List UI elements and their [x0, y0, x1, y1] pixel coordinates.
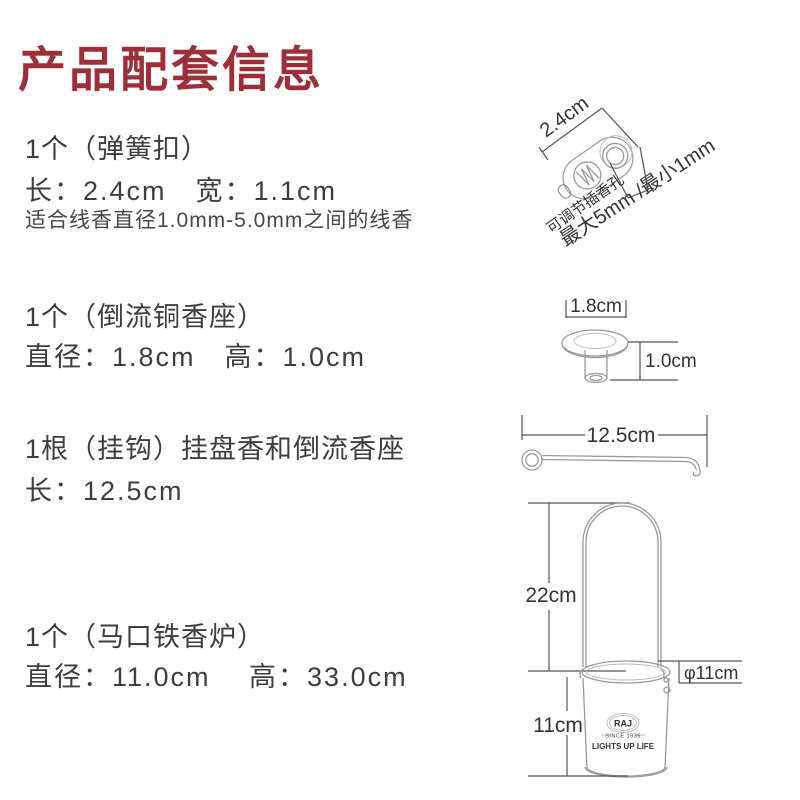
copper-seat-diagram: 1.8cm 1.0cm: [550, 290, 720, 400]
burner-logo: RAJ SINCE 1935 LIGHTS UP LIFE: [592, 714, 655, 752]
burner-handle-height-label: 22cm: [525, 584, 576, 607]
hook-diagram: 12.5cm: [505, 405, 755, 490]
item-spring-clasp-note: 适合线香直径1.0mm-5.0mm之间的线香: [25, 204, 413, 234]
burner-logo-name: RAJ: [614, 719, 632, 729]
seat-diameter-label: 1.8cm: [570, 296, 622, 317]
burner-drawing: RAJ SINCE 1935 LIGHTS UP LIFE: [580, 503, 670, 777]
clasp-length-label: 2.4cm: [536, 92, 593, 142]
burner-logo-since: SINCE 1935: [605, 734, 641, 740]
seat-diameter-dimension: 1.8cm: [566, 296, 626, 318]
item-copper-seat-name: 1个（倒流铜香座）: [25, 295, 265, 334]
burner-diagram: 22cm RAJ SIN: [515, 495, 765, 795]
burner-body-height-label: 11cm: [533, 714, 583, 737]
burner-handle-dimension: 22cm: [525, 503, 630, 671]
hook-length-label: 12.5cm: [587, 424, 656, 447]
item-spring-clasp-dims: 长：2.4cm 宽：1.1cm: [25, 169, 337, 208]
item-burner-dims: 直径：11.0cm 高：33.0cm: [25, 655, 408, 694]
page-title: 产品配套信息: [18, 30, 324, 100]
spring-clasp-diagram: 2.4cm 可调节插香孔 最大5mm /最小1mm: [520, 85, 760, 275]
item-burner-name: 1个（马口铁香炉）: [25, 615, 265, 654]
burner-diameter-label: φ11cm: [684, 663, 738, 683]
seat-height-label: 1.0cm: [645, 351, 697, 372]
item-hook-dims: 长：12.5cm: [25, 469, 184, 508]
seat-drawing: [562, 330, 628, 383]
hook-drawing: [522, 450, 700, 476]
item-spring-clasp-name: 1个（弹簧扣）: [25, 127, 209, 166]
item-hook-name: 1根（挂钩）挂盘香和倒流香座: [25, 427, 405, 466]
burner-logo-slogan: LIGHTS UP LIFE: [592, 742, 655, 751]
item-copper-seat-dims: 直径：1.8cm 高：1.0cm: [25, 335, 366, 374]
product-info-page: 产品配套信息 1个（弹簧扣） 长：2.4cm 宽：1.1cm 适合线香直径1.0…: [0, 0, 800, 800]
